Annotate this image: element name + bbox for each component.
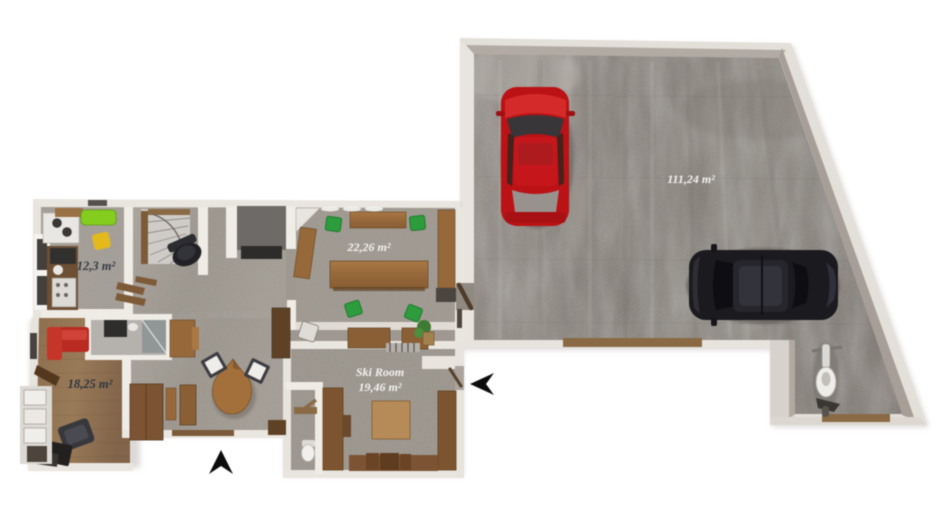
svg-text:111,24 m²: 111,24 m² <box>667 172 715 186</box>
svg-text:12,3 m²: 12,3 m² <box>77 259 116 273</box>
svg-text:22,26 m²: 22,26 m² <box>347 240 391 254</box>
svg-text:19,46 m²: 19,46 m² <box>359 380 402 394</box>
svg-text:18,25 m²: 18,25 m² <box>68 377 113 391</box>
svg-text:Ski Room: Ski Room <box>356 365 404 379</box>
